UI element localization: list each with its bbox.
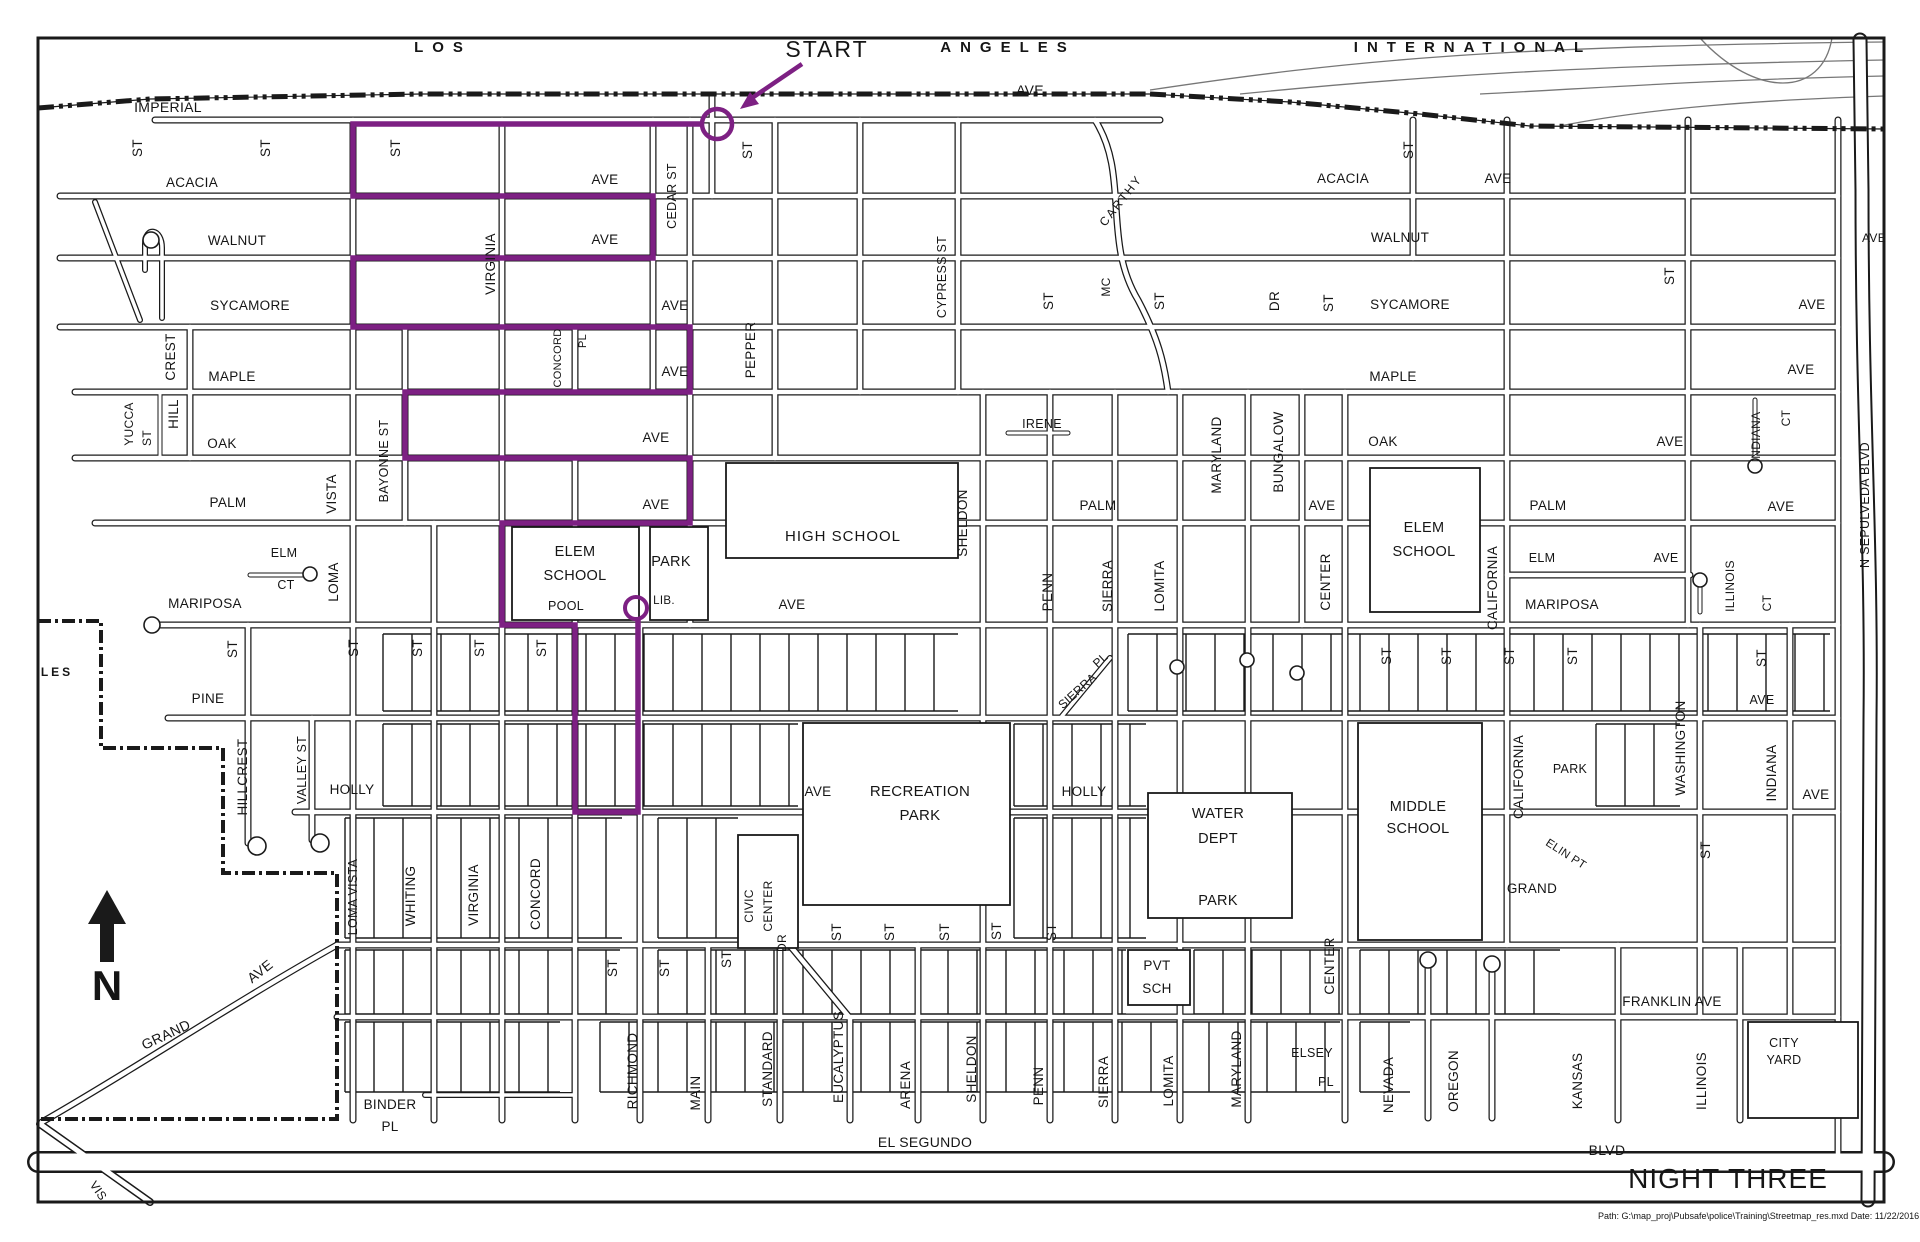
map-label: SYCAMORE <box>210 298 290 313</box>
map-label: SYCAMORE <box>1370 297 1450 312</box>
map-label: HOLLY <box>330 782 375 797</box>
map-label: BAYONNE ST <box>377 420 391 503</box>
map-label: ELM <box>1529 551 1556 565</box>
map-label: SCHOOL <box>1392 544 1455 560</box>
map-label: LOMITA <box>1152 560 1167 611</box>
map-label: WALNUT <box>208 233 266 248</box>
map-label: RECREATION <box>870 783 970 800</box>
map-label: AVE <box>592 232 619 247</box>
map-label: WALNUT <box>1371 230 1429 245</box>
map-label: PL <box>381 1119 398 1134</box>
map-label: AVE <box>1799 297 1826 312</box>
map-label: AVE <box>805 784 832 799</box>
north-arrow-head-icon <box>88 890 126 924</box>
map-label: AVE <box>1803 787 1830 802</box>
map-label: HOLLY <box>1062 784 1107 799</box>
map-label: PEPPER <box>743 322 758 379</box>
map-label: CALIFORNIA <box>1485 546 1500 630</box>
map-label: OAK <box>1368 434 1397 449</box>
map-label: AVE <box>779 597 806 612</box>
map-label: PALM <box>1080 498 1117 513</box>
map-label: GRAND <box>1507 881 1557 896</box>
map-label: CT <box>277 578 294 592</box>
map-label: ST <box>534 639 549 657</box>
map-label: ST <box>410 639 425 657</box>
map-label: IRENE <box>1022 417 1062 431</box>
map-label: CENTER <box>1322 937 1337 994</box>
map-label: MARYLAND <box>1209 416 1224 493</box>
map-label: PL <box>1318 1075 1334 1089</box>
map-label: ARENA <box>898 1061 913 1109</box>
map-label: CREST <box>163 333 178 380</box>
map-label: AVE <box>643 497 670 512</box>
map-label: YUCCA <box>122 402 136 446</box>
map-label: PARK <box>651 554 691 570</box>
map-label: SHELDON <box>964 1035 979 1102</box>
map-label: BUNGALOW <box>1271 411 1286 492</box>
map-label: ST <box>258 139 273 157</box>
map-label: ELEM <box>1404 520 1445 536</box>
map-label: ST <box>1754 649 1769 667</box>
map-label: ST <box>225 640 240 658</box>
map-label: RICHMOND <box>625 1033 640 1110</box>
map-label: OREGON <box>1446 1050 1461 1112</box>
map-label: AVE <box>662 298 689 313</box>
map-label: ST <box>829 923 844 941</box>
map-label: MAIN <box>688 1076 703 1111</box>
map-label: OAK <box>207 436 236 451</box>
map-label: PENN <box>1040 573 1055 612</box>
map-label: ELIN PT <box>1543 837 1588 872</box>
map-label: ST <box>1565 647 1580 665</box>
map-label: ST <box>472 639 487 657</box>
city-boundary <box>38 621 337 1119</box>
map-label: SCHOOL <box>1386 821 1449 837</box>
map-label: CARTHY <box>1097 172 1146 229</box>
north-letter: N <box>92 962 122 1009</box>
map-label: SIERRA <box>1100 560 1115 612</box>
map-label: HILLCREST <box>235 739 250 816</box>
map-label: STANDARD <box>760 1031 775 1107</box>
map-label: BLVD <box>1589 1142 1626 1158</box>
map-label: INDIANA <box>1749 412 1763 463</box>
map-label: YARD <box>1766 1053 1801 1067</box>
map-label: HIGH SCHOOL <box>785 528 901 545</box>
map-label: CYPRESS ST <box>935 236 949 318</box>
map-label: SCHOOL <box>543 568 606 584</box>
map-label: VISTA <box>324 474 339 514</box>
map-label: ST <box>388 139 403 157</box>
map-label: MIDDLE <box>1390 799 1447 815</box>
map-label: EL SEGUNDO <box>878 1134 972 1150</box>
map-label: ST <box>1044 923 1059 941</box>
map-label: NEVADA <box>1381 1057 1396 1113</box>
map-label: ST <box>605 959 620 977</box>
map-label: LOMITA <box>1161 1055 1176 1106</box>
map-label: ST <box>989 922 1004 940</box>
map-label: AVE <box>1654 551 1679 565</box>
map-label: LOS <box>414 39 472 56</box>
map-label: ST <box>140 430 154 446</box>
map-label: AVE <box>662 364 689 379</box>
map-label: ST <box>1502 647 1517 665</box>
map-label: ST <box>882 923 897 941</box>
map-label: LIB. <box>653 595 675 607</box>
map-label: ST <box>719 950 734 968</box>
map-label: PL <box>577 334 589 348</box>
map-label: ACACIA <box>1317 171 1369 186</box>
map-label: MARIPOSA <box>168 596 242 611</box>
map-label: PALM <box>1530 498 1567 513</box>
map-label: FRANKLIN AVE <box>1622 994 1721 1009</box>
map-label: CONCORD <box>528 858 543 930</box>
map-label: BINDER <box>364 1097 417 1112</box>
map-label: SIERRA <box>1096 1056 1111 1108</box>
map-label: NIGHT THREE <box>1628 1163 1828 1194</box>
map-label: INDIANA <box>1764 745 1779 802</box>
map-label: PL <box>1090 650 1111 671</box>
map-label: WASHINGTON <box>1673 700 1688 795</box>
map-label: CT <box>1760 594 1774 611</box>
map-label: POOL <box>548 599 584 613</box>
lot-lines <box>345 634 1830 1092</box>
map-label: LOMA VISTA <box>346 858 360 935</box>
map-label: PARK <box>1198 893 1238 909</box>
map-label: PARK <box>1553 762 1588 776</box>
map-label: AVE <box>1016 82 1044 98</box>
map-label: EUCALYPTUS <box>831 1011 846 1103</box>
map-label: N SEPULVEDA BLVD <box>1858 442 1872 568</box>
map-label: CENTER <box>761 880 775 931</box>
map-label: ST <box>1439 647 1454 665</box>
map-label: WHITING <box>403 866 418 927</box>
map-label: LOMA <box>326 562 341 601</box>
elem-school-right-block <box>1370 468 1480 612</box>
map-label: VIS <box>87 1178 110 1203</box>
map-label: MARYLAND <box>1229 1030 1244 1107</box>
map-label: AVE <box>1657 434 1684 449</box>
map-label: ST <box>740 141 755 159</box>
map-label: CITY <box>1769 1036 1799 1050</box>
map-label: PENN <box>1031 1067 1046 1106</box>
map-label: ST <box>346 639 361 657</box>
map-label: CONCORD <box>552 329 564 388</box>
city-yard-block <box>1748 1022 1858 1118</box>
map-label: AVE <box>1309 498 1336 513</box>
map-label: DEPT <box>1198 831 1238 847</box>
map-label: ELEM <box>555 544 596 560</box>
map-label: DR <box>775 934 789 952</box>
map-label: MAPLE <box>208 369 255 384</box>
street-map-canvas[interactable]: LOSANGELESINTERNATIONALIMPERIALAVESTARTS… <box>0 0 1920 1242</box>
map-label: ST <box>1379 647 1394 665</box>
map-label: KANSAS <box>1570 1053 1585 1110</box>
map-label: AVE <box>643 430 670 445</box>
footer-text: Path: G:\map_proj\Pubsafe\police\Trainin… <box>1598 1211 1919 1221</box>
street-casing <box>38 40 1884 1202</box>
map-file-path: Path: G:\map_proj\Pubsafe\police\Trainin… <box>1598 1211 1919 1221</box>
map-label: ST <box>1698 841 1713 859</box>
street-map-page: LOSANGELESINTERNATIONALIMPERIALAVESTARTS… <box>0 0 1920 1242</box>
map-label: LES <box>41 665 73 679</box>
map-label: CENTER <box>1318 553 1333 610</box>
map-label: DR <box>1267 291 1282 311</box>
map-label: PINE <box>192 691 225 706</box>
map-label: WATER <box>1192 806 1244 822</box>
map-label: ANGELES <box>940 39 1076 56</box>
map-label: ST <box>1662 267 1677 285</box>
map-label: PVT <box>1143 958 1170 973</box>
map-label: AVE <box>1768 499 1795 514</box>
map-label: ACACIA <box>166 175 218 190</box>
map-label: VIRGINIA <box>466 864 481 926</box>
map-label: INTERNATIONAL <box>1354 39 1592 56</box>
map-label: START <box>785 36 868 62</box>
map-label: PALM <box>210 495 247 510</box>
map-label: MC <box>1099 277 1113 296</box>
map-label: ST <box>1401 141 1416 159</box>
map-label: ST <box>1152 292 1167 310</box>
map-label: CALIFORNIA <box>1511 735 1526 819</box>
map-label: ELSEY <box>1291 1046 1333 1060</box>
map-label: CIVIC <box>742 889 756 923</box>
map-label: MARIPOSA <box>1525 597 1599 612</box>
map-label: AVE <box>1788 362 1815 377</box>
map-label: CT <box>1779 409 1793 426</box>
map-label: HILL <box>166 399 181 429</box>
map-label: AVE <box>1750 693 1775 707</box>
map-label: SHELDON <box>955 489 970 556</box>
map-label: ST <box>130 139 145 157</box>
map-label: ST <box>937 923 952 941</box>
map-label: ST <box>1321 294 1336 312</box>
map-label: VIRGINIA <box>483 233 498 295</box>
map-label: IMPERIAL <box>134 99 202 115</box>
map-label: MAPLE <box>1369 369 1416 384</box>
map-label: SCH <box>1142 981 1171 996</box>
map-label: VALLEY ST <box>295 736 309 804</box>
map-label: SIERRA <box>1055 670 1099 712</box>
map-label: AVE <box>1862 231 1886 245</box>
patrol-route <box>353 64 802 812</box>
street-labels: LOSANGELESINTERNATIONALIMPERIALAVESTARTS… <box>41 36 1886 1203</box>
map-label: ELM <box>271 546 298 560</box>
map-label: ILLINOIS <box>1723 560 1737 612</box>
map-label: ST <box>657 959 672 977</box>
map-label: ST <box>1041 292 1056 310</box>
map-label: AVE <box>1485 171 1512 186</box>
route-start-circle <box>702 109 732 139</box>
north-arrow: N <box>88 890 126 1009</box>
map-label: PARK <box>900 807 941 824</box>
map-label: AVE <box>592 172 619 187</box>
map-label: CEDAR ST <box>665 163 679 229</box>
north-arrow-shaft-icon <box>100 924 114 962</box>
map-label: ILLINOIS <box>1694 1052 1709 1110</box>
